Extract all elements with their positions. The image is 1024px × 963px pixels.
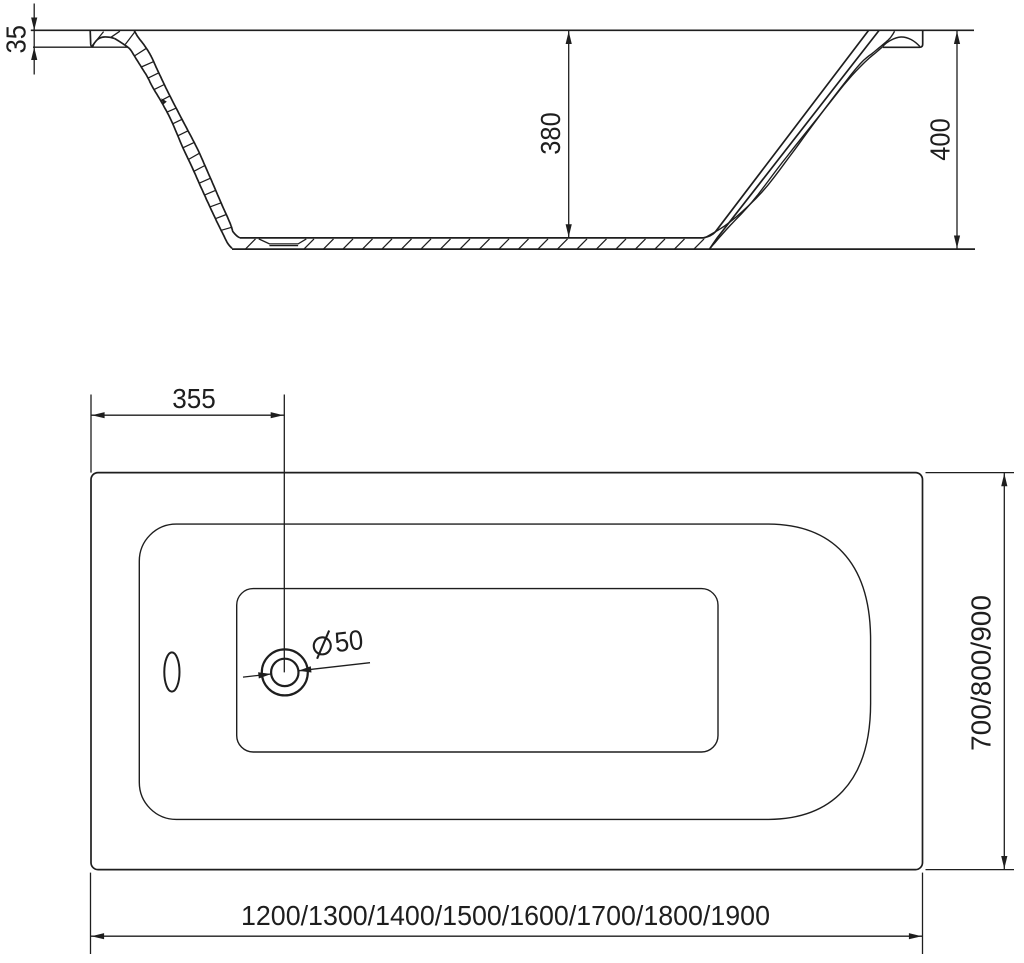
svg-text:380: 380 [535,112,566,155]
svg-text:35: 35 [1,25,32,54]
svg-text:1200/1300/1400/1500/1600/1700/: 1200/1300/1400/1500/1600/1700/1800/1900 [241,900,770,931]
svg-text:400: 400 [925,118,956,161]
svg-text:50: 50 [333,624,365,658]
svg-text:355: 355 [172,383,216,414]
svg-text:700/800/900: 700/800/900 [965,595,996,751]
